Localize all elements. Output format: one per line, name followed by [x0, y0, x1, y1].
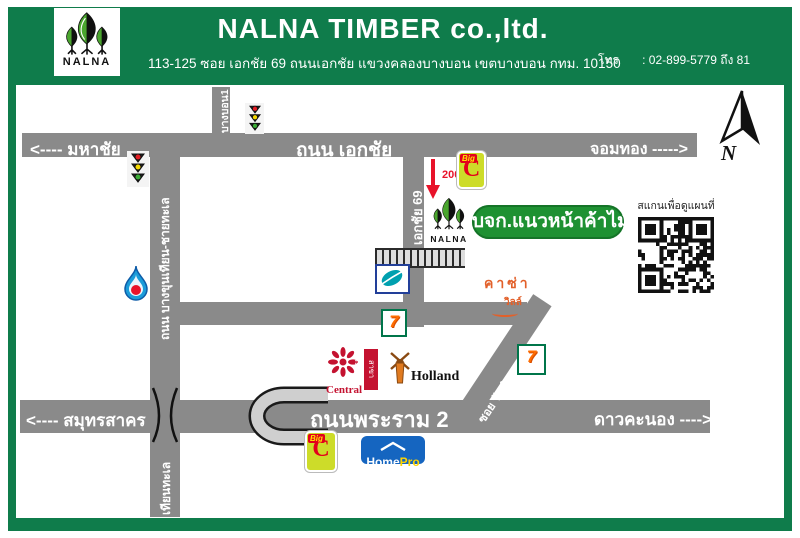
lotus-logo: [375, 264, 410, 294]
logo-wordmark: NALNA: [63, 56, 112, 68]
nalna-map-wordmark: NALNA: [427, 234, 471, 244]
homepro-pro-label: Pro: [400, 455, 420, 469]
house-roof-icon: [378, 441, 408, 451]
map-area: <---- มหาชัย ถนน เอกชัย จอมทอง -----> บา…: [16, 85, 784, 518]
ptt-station-icon: [122, 265, 150, 308]
label-mahachai: <---- มหาชัย: [30, 136, 121, 163]
distance-arrow-icon: [426, 159, 440, 199]
label-bangkhunthian: ถนน บางขุนเทียน-ชายทะเล: [156, 155, 175, 340]
nalna-trees-icon: [429, 197, 469, 231]
label-samutsakhon: <---- สมุทรสาคร: [26, 407, 146, 434]
casa-line2: วิลล์: [504, 295, 531, 310]
label-thianthale: เทียนทะเล: [157, 437, 176, 515]
homepro-home-label: Home: [366, 455, 399, 469]
central-branch-banner: สาขา พระราม 2: [364, 349, 378, 390]
contact-phone: โทร : 02-899-5779 ถึง 81: [598, 51, 786, 69]
bigc-big-label: Big: [460, 154, 477, 163]
casa-ville-label: คาซ่า วิลล์: [484, 273, 531, 317]
nalna-map-logo: NALNA: [427, 197, 471, 244]
destination-sign: บจก.แนวหน้าค้าไม้: [472, 205, 624, 239]
label-thanon-ekkachai: ถนน เอกชัย: [296, 135, 392, 165]
casa-line1: คาซ่า: [484, 273, 531, 295]
seven-eleven-logo: 7: [517, 344, 546, 375]
casa-underline: [492, 310, 518, 317]
seven-glyph: 7: [519, 346, 544, 368]
company-logo: NALNA: [54, 8, 120, 76]
title-block: NALNA TIMBER co.,ltd. 113-125 ซอย เอกชัย…: [148, 11, 618, 74]
qr-code: [638, 217, 714, 293]
road-connector: [155, 302, 527, 325]
bigc-big-label: Big: [308, 434, 325, 443]
bigc-logo: Big C: [305, 431, 337, 472]
central-logo: Central สาขา พระราม 2: [326, 347, 380, 393]
label-ekkachai69: เอกชัย 69: [407, 163, 428, 245]
compass-n-label: N: [721, 141, 736, 166]
nalna-trees-icon: [60, 11, 114, 57]
holland-logo: Holland: [385, 351, 459, 385]
green-frame: NALNA NALNA TIMBER co.,ltd. 113-125 ซอย …: [8, 7, 792, 531]
company-address: 113-125 ซอย เอกชัย 69 ถนนเอกชัย แขวงคลอง…: [148, 52, 618, 74]
holland-wordmark: Holland: [411, 369, 459, 385]
label-bangbon1: บางบอน1: [216, 88, 233, 133]
flyer-page: NALNA NALNA TIMBER co.,ltd. 113-125 ซอย …: [0, 0, 800, 538]
traffic-light-icon: [127, 151, 149, 187]
label-daokhanong: ดาวคะนอง ---->: [594, 406, 712, 433]
label-chomthong: จอมทอง ----->: [590, 137, 688, 162]
seven-glyph: 7: [383, 311, 405, 333]
bigc-logo: Big C: [457, 151, 486, 189]
seven-eleven-logo: 7: [381, 309, 407, 337]
qr-block: สแกนเพื่อดูแผนที่: [633, 197, 719, 293]
traffic-light-icon: [245, 103, 264, 134]
qr-caption: สแกนเพื่อดูแผนที่: [633, 197, 719, 214]
company-title: NALNA TIMBER co.,ltd.: [148, 11, 618, 46]
homepro-logo: HomePro: [361, 436, 425, 464]
